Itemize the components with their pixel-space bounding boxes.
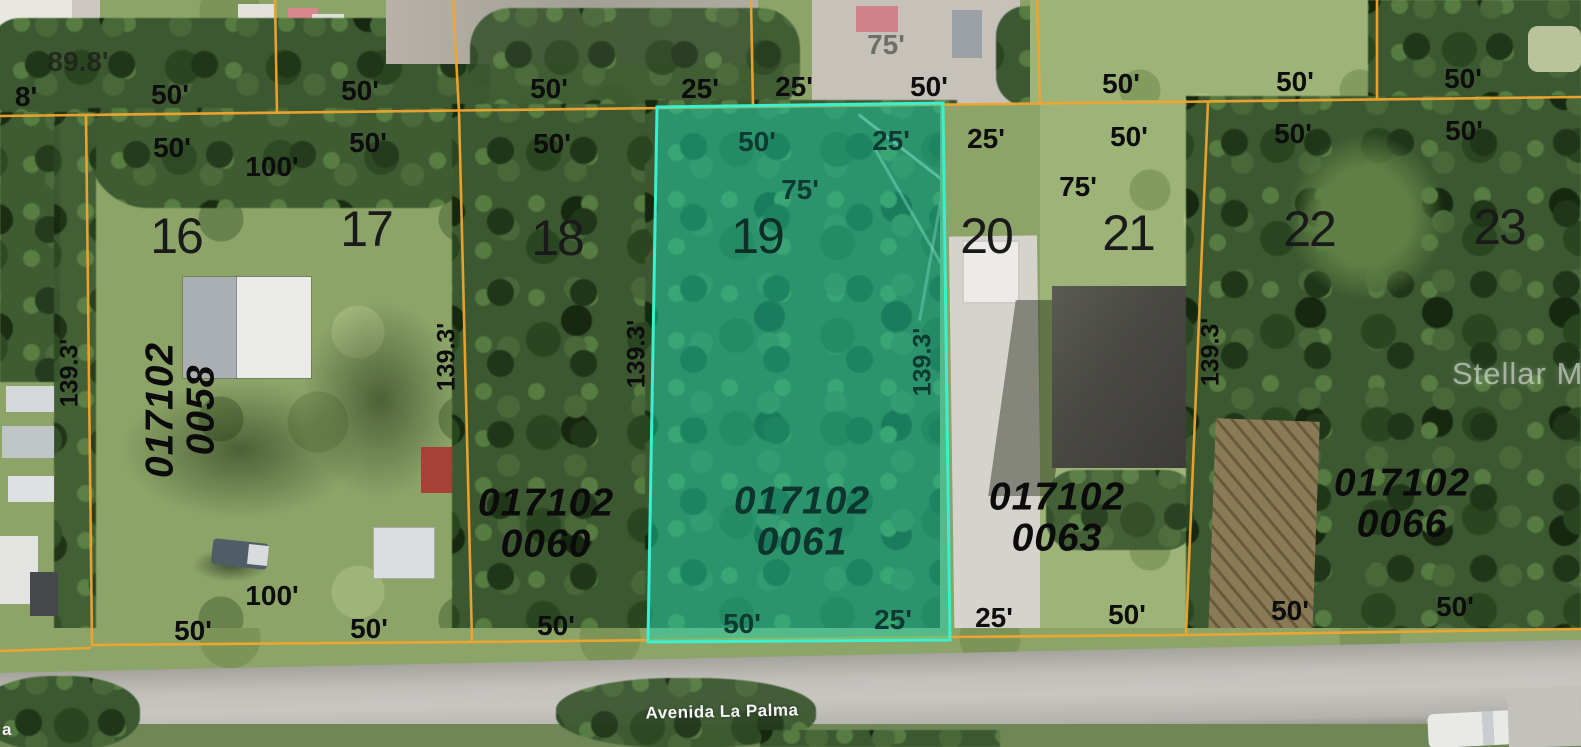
- lot-number: 17: [340, 200, 392, 258]
- dimension-label: 50': [341, 75, 379, 107]
- parcel-id-label: 0171020060: [478, 483, 614, 564]
- dimension-label: 25': [681, 73, 719, 105]
- dimension-label: 25': [967, 123, 1005, 155]
- dimension-label: 50': [533, 128, 571, 160]
- lot-depth-label: 139.3': [433, 323, 462, 392]
- dimension-label: 25': [775, 71, 813, 103]
- street-label: Avenida La Palma: [645, 700, 798, 723]
- aerial-parcel-map: Avenida La Palma a 89.8'8'50'50'50'25'25…: [0, 0, 1581, 747]
- parcel-id-label: 0171020066: [1334, 463, 1470, 544]
- dimension-label: 75': [1059, 171, 1097, 203]
- dimension-label: 50': [1276, 66, 1314, 98]
- lot-depth-label: 139.3': [909, 328, 938, 397]
- dimension-label: 50': [1102, 68, 1140, 100]
- dimension-label: 25': [975, 602, 1013, 634]
- dimension-label: 50': [174, 615, 212, 647]
- lot-number: 16: [150, 207, 202, 265]
- dimension-label: 50': [530, 73, 568, 105]
- dimension-label: 50': [1444, 63, 1482, 95]
- dimension-label: 100': [245, 151, 298, 183]
- lot-depth-label: 139.3': [56, 339, 85, 408]
- parcel-id-label: 0171020063: [989, 477, 1125, 558]
- dimension-label: 25': [874, 604, 912, 636]
- lot-depth-label: 139.3': [623, 320, 652, 389]
- dimension-label: 50': [151, 79, 189, 111]
- lot-depth-label: 139.3': [1197, 318, 1226, 387]
- dimension-label: 25': [872, 125, 910, 157]
- parcel-id-label: 0171020061: [734, 481, 870, 562]
- street-label-partial: a: [2, 720, 12, 740]
- lot-number: 20: [960, 207, 1012, 265]
- dimension-label: 50': [350, 613, 388, 645]
- dimension-label: 75': [781, 174, 819, 206]
- dimension-label: 50': [1445, 115, 1483, 147]
- dimension-label: 50': [1271, 595, 1309, 627]
- dimension-label: 100': [245, 580, 298, 612]
- mls-watermark: Stellar MLS: [1452, 356, 1581, 392]
- lot-number: 22: [1283, 200, 1335, 258]
- dimension-label: 89.8': [47, 46, 108, 78]
- parcel-id-label: 0171020058: [140, 342, 221, 478]
- dimension-label: 50': [1108, 599, 1146, 631]
- dimension-label: 50': [349, 127, 387, 159]
- dimension-label: 8': [15, 81, 37, 113]
- dimension-label: 50': [723, 608, 761, 640]
- dimension-label: 50': [1274, 118, 1312, 150]
- dimension-label: 50': [153, 132, 191, 164]
- dimension-label: 50': [1110, 121, 1148, 153]
- dimension-label: 50': [910, 71, 948, 103]
- dimension-label: 75': [867, 29, 905, 61]
- lot-number: 21: [1102, 204, 1154, 262]
- dimension-label: 50': [738, 126, 776, 158]
- label-layer: Avenida La Palma a 89.8'8'50'50'50'25'25…: [0, 0, 1581, 747]
- lot-number: 19: [731, 207, 783, 265]
- lot-number: 23: [1473, 198, 1525, 256]
- dimension-label: 50': [1436, 591, 1474, 623]
- dimension-label: 50': [537, 610, 575, 642]
- lot-number: 18: [531, 209, 583, 267]
